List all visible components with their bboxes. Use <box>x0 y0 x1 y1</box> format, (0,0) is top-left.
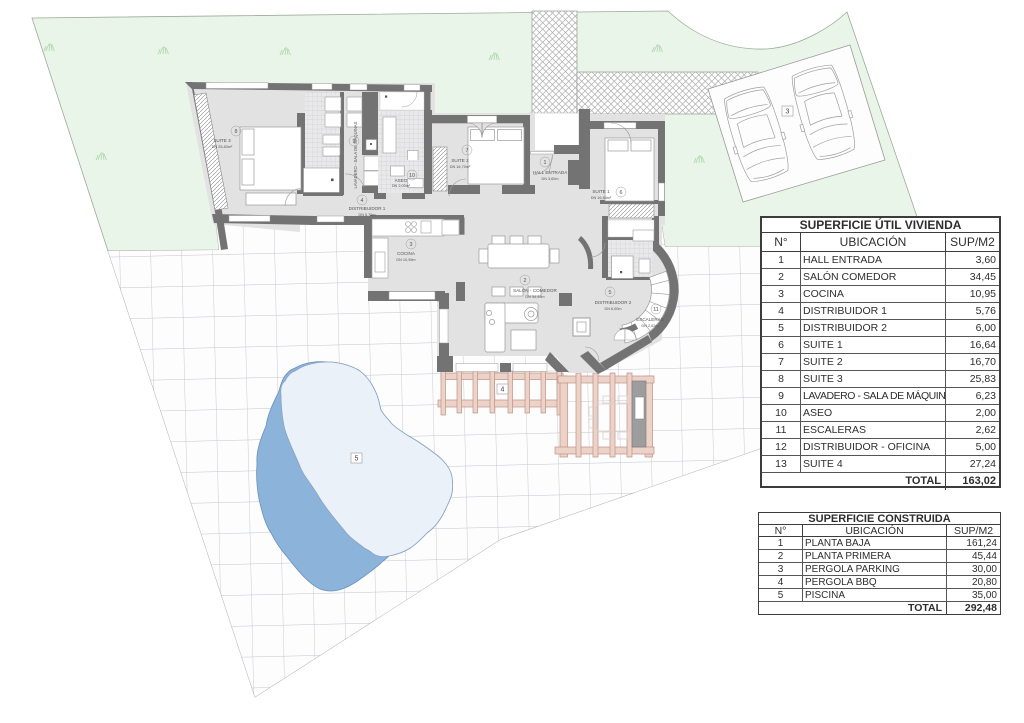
svg-text:COCINA: COCINA <box>397 251 416 256</box>
svg-text:DISTRIBUIDOR 1: DISTRIBUIDOR 1 <box>349 206 386 211</box>
svg-text:ESCALERAS: ESCALERAS <box>636 317 664 322</box>
svg-text:3: 3 <box>410 242 413 248</box>
svg-text:7: 7 <box>466 148 469 154</box>
svg-text:DN 16,70m²: DN 16,70m² <box>450 165 471 169</box>
svg-text:9: 9 <box>353 139 356 145</box>
svg-text:8: 8 <box>235 129 238 135</box>
svg-text:DN 6,00m: DN 6,00m <box>604 307 621 311</box>
svg-text:4: 4 <box>361 198 364 204</box>
svg-text:3: 3 <box>786 109 790 116</box>
svg-text:DN 2,00m²: DN 2,00m² <box>392 184 411 188</box>
svg-text:SUITE 3: SUITE 3 <box>213 138 231 143</box>
svg-text:2: 2 <box>524 278 527 284</box>
svg-text:DN 25,83m²: DN 25,83m² <box>212 145 233 149</box>
svg-text:DN 10,95m: DN 10,95m <box>396 258 415 262</box>
svg-text:SALÓN - COMEDOR: SALÓN - COMEDOR <box>513 287 557 293</box>
svg-text:HALL ENTRADA: HALL ENTRADA <box>533 170 568 175</box>
svg-text:DISTRIBUIDOR 2: DISTRIBUIDOR 2 <box>595 300 632 305</box>
svg-text:4: 4 <box>501 387 505 394</box>
svg-text:SUITE 2: SUITE 2 <box>451 158 469 163</box>
svg-text:5: 5 <box>355 456 359 463</box>
svg-text:SUITE 1: SUITE 1 <box>592 189 610 194</box>
svg-text:DN 34,45m: DN 34,45m <box>525 295 544 299</box>
svg-text:11: 11 <box>653 307 659 313</box>
svg-text:LAVADERO - SALA DE MÁQUINAS: LAVADERO - SALA DE MÁQUINAS <box>353 121 358 188</box>
svg-text:DN 5,76m: DN 5,76m <box>358 213 375 217</box>
svg-text:ASEO: ASEO <box>395 178 408 183</box>
svg-text:5: 5 <box>609 290 612 296</box>
svg-text:DN 3,60m: DN 3,60m <box>541 177 558 181</box>
svg-text:DN 2,62m: DN 2,62m <box>641 324 658 328</box>
svg-text:6: 6 <box>620 190 623 196</box>
svg-text:10: 10 <box>409 173 415 179</box>
svg-text:1: 1 <box>544 160 547 166</box>
svg-text:DN 16,64m²: DN 16,64m² <box>591 196 612 200</box>
